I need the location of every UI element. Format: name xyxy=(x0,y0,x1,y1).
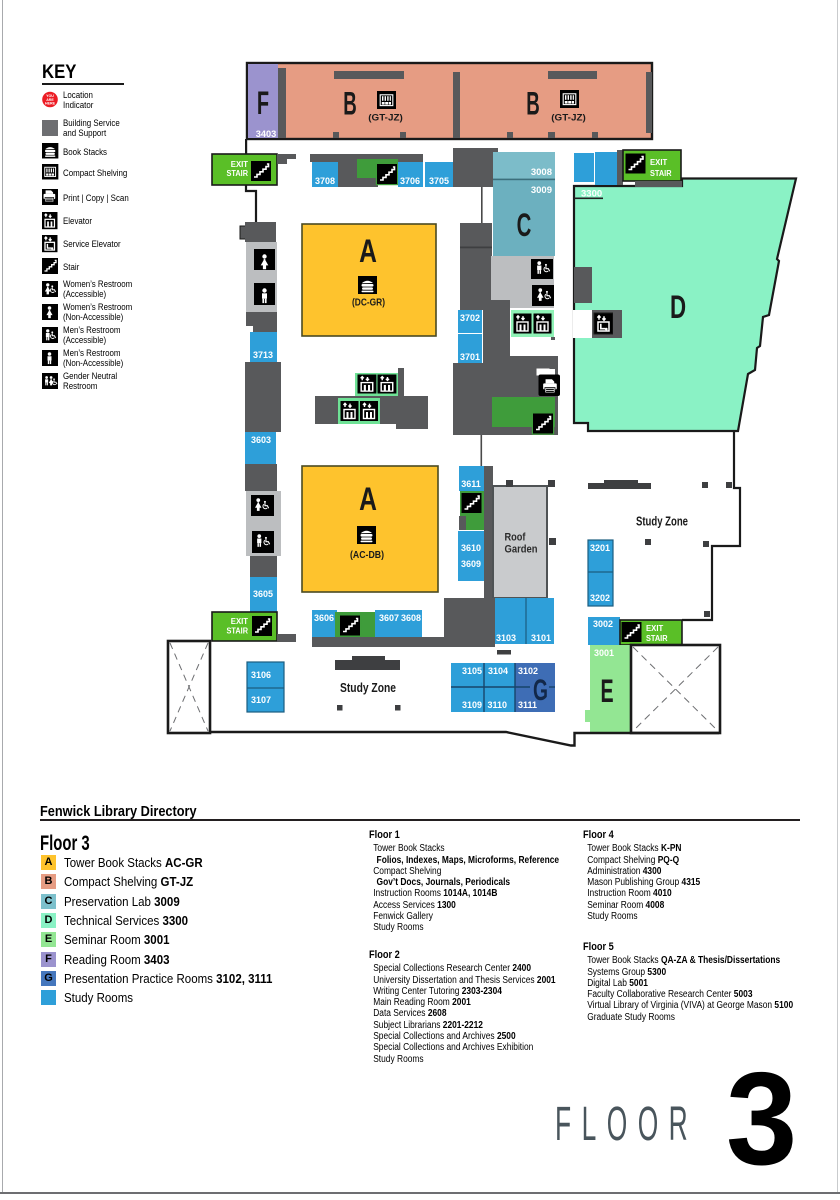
svg-text:EXIT: EXIT xyxy=(650,158,667,167)
svg-text:D: D xyxy=(670,289,686,325)
svg-text:3103: 3103 xyxy=(496,633,516,643)
svg-text:(GT-JZ): (GT-JZ) xyxy=(551,113,586,124)
svg-text:3708: 3708 xyxy=(315,176,335,186)
svg-text:Roof: Roof xyxy=(505,532,526,544)
svg-text:3008: 3008 xyxy=(531,167,552,178)
svg-text:(AC-DB): (AC-DB) xyxy=(350,550,384,561)
svg-text:Garden: Garden xyxy=(505,544,538,556)
svg-text:3702: 3702 xyxy=(460,313,480,323)
svg-text:3009: 3009 xyxy=(531,185,552,196)
svg-text:F: F xyxy=(257,85,269,121)
svg-text:G: G xyxy=(533,674,548,707)
svg-text:3107: 3107 xyxy=(251,695,271,705)
svg-text:Study Zone: Study Zone xyxy=(636,514,688,529)
svg-text:3605: 3605 xyxy=(253,589,273,599)
svg-text:3706: 3706 xyxy=(400,176,420,186)
svg-text:STAIR: STAIR xyxy=(650,169,672,178)
svg-text:EXIT: EXIT xyxy=(646,624,663,633)
svg-text:3603: 3603 xyxy=(251,435,271,445)
svg-text:3611: 3611 xyxy=(461,479,481,489)
svg-text:3002: 3002 xyxy=(593,619,613,629)
svg-text:3701: 3701 xyxy=(460,352,480,362)
svg-text:STAIR: STAIR xyxy=(227,627,249,636)
svg-text:HERE: HERE xyxy=(45,102,56,106)
svg-text:3609: 3609 xyxy=(461,559,481,569)
svg-text:3713: 3713 xyxy=(253,350,273,360)
svg-text:3109: 3109 xyxy=(462,700,482,710)
svg-text:3608: 3608 xyxy=(401,613,421,623)
svg-text:3202: 3202 xyxy=(590,593,610,603)
svg-text:3705: 3705 xyxy=(429,176,449,186)
svg-text:Study Zone: Study Zone xyxy=(340,680,396,695)
svg-text:STAIR: STAIR xyxy=(227,169,249,178)
svg-text:A: A xyxy=(359,481,377,517)
svg-text:3106: 3106 xyxy=(251,670,271,680)
svg-text:B: B xyxy=(526,86,540,122)
svg-text:STAIR: STAIR xyxy=(646,634,668,643)
svg-text:EXIT: EXIT xyxy=(231,617,248,626)
svg-text:3610: 3610 xyxy=(461,543,481,553)
svg-text:3403: 3403 xyxy=(256,129,277,140)
svg-text:A: A xyxy=(359,233,377,269)
svg-text:3607: 3607 xyxy=(379,613,399,623)
svg-text:3001: 3001 xyxy=(594,648,614,658)
svg-text:EXIT: EXIT xyxy=(231,160,248,169)
svg-text:(DC-GR): (DC-GR) xyxy=(352,298,385,309)
svg-text:3110: 3110 xyxy=(487,700,507,710)
svg-text:B: B xyxy=(343,86,357,122)
svg-text:3101: 3101 xyxy=(531,633,551,643)
svg-text:(GT-JZ): (GT-JZ) xyxy=(368,113,403,124)
svg-text:3201: 3201 xyxy=(590,543,610,553)
svg-text:3105: 3105 xyxy=(462,666,482,676)
svg-text:3104: 3104 xyxy=(488,666,508,676)
svg-text:C: C xyxy=(517,207,532,243)
svg-text:3606: 3606 xyxy=(314,613,334,623)
svg-text:E: E xyxy=(600,673,613,709)
